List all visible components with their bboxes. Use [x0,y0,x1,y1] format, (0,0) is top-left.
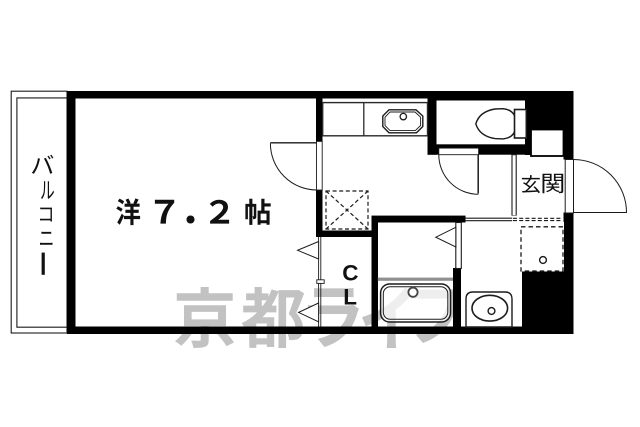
svg-text:L: L [343,285,357,310]
svg-text:C: C [342,260,358,285]
